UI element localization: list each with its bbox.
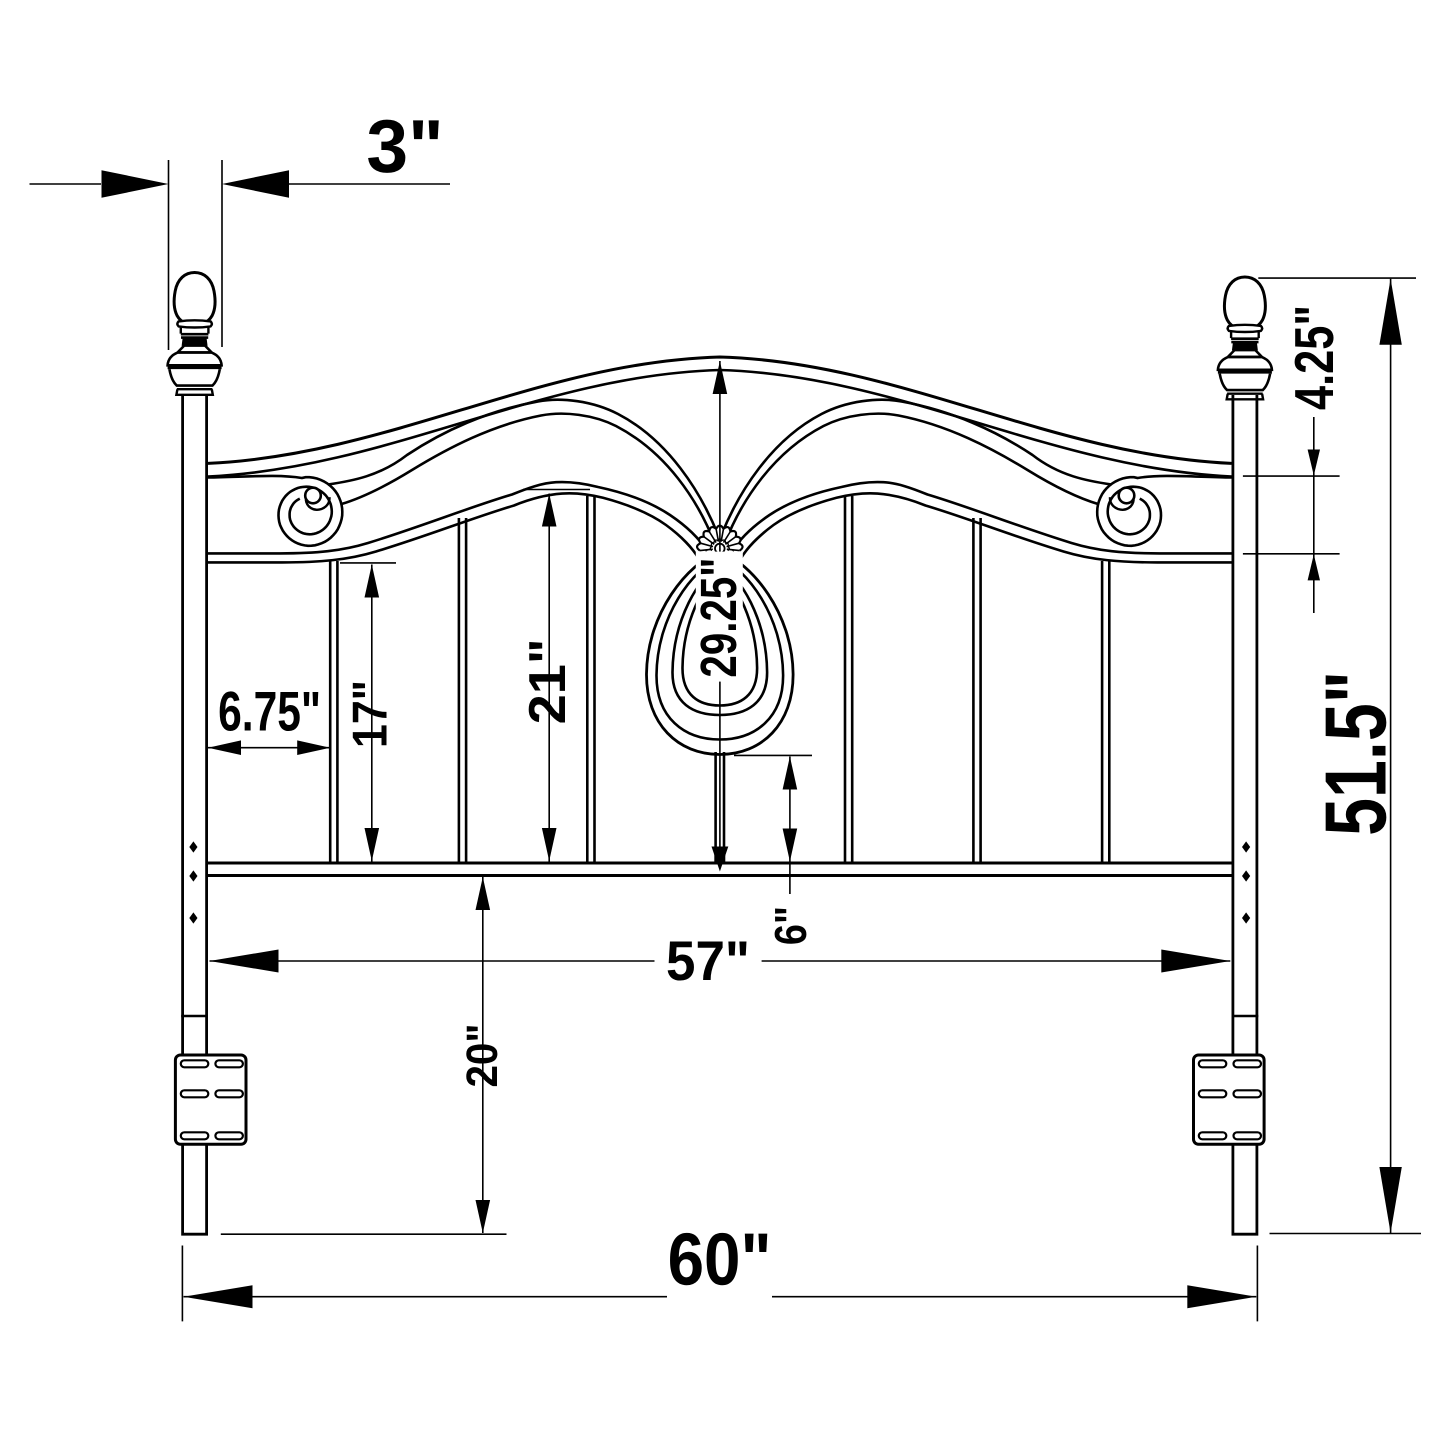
svg-text:6": 6": [765, 906, 816, 945]
svg-text:6.75": 6.75": [218, 680, 321, 743]
svg-text:57": 57": [666, 929, 750, 992]
svg-text:4.25": 4.25": [1283, 305, 1345, 410]
svg-text:17": 17": [343, 680, 397, 748]
svg-text:60": 60": [668, 1218, 772, 1301]
svg-text:21": 21": [519, 638, 577, 724]
svg-text:29.25": 29.25": [690, 558, 747, 678]
svg-text:20": 20": [458, 1024, 507, 1088]
svg-text:51.5": 51.5": [1308, 671, 1405, 836]
svg-text:3": 3": [366, 104, 443, 188]
